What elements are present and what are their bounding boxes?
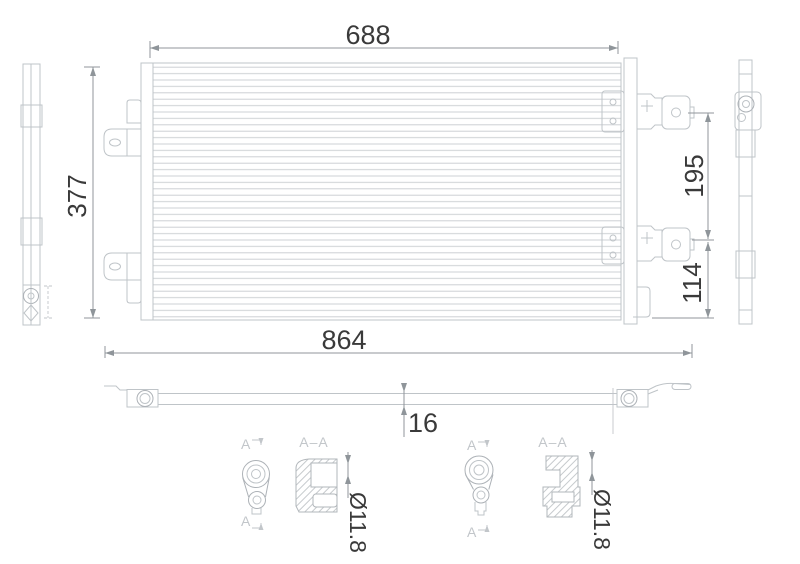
dimension-16: 16 <box>404 384 438 438</box>
bottom-view <box>104 383 691 434</box>
dim-port-left-text: Ø11.8 <box>345 492 371 553</box>
detail-left: A A A–A <box>241 434 337 529</box>
section-title-right: A–A <box>538 434 567 450</box>
dim-864-text: 864 <box>321 325 366 355</box>
right-upper-mount-cross <box>641 100 653 112</box>
section-title-left: A–A <box>299 434 328 450</box>
section-arrow-top-right <box>478 442 487 447</box>
bottom-bracket-arm <box>648 383 690 390</box>
right-lower-clip-hole <box>672 240 681 249</box>
front-view <box>104 58 694 324</box>
dimension-377: 377 <box>62 67 100 318</box>
dimension-688: 688 <box>150 20 618 58</box>
detail-right: A A A–A <box>465 434 580 540</box>
section-arrow-bottom-left-label: A <box>241 513 251 529</box>
dim-port-right-text: Ø11.8 <box>589 489 615 550</box>
dimension-port-left: Ø11.8 <box>345 452 371 553</box>
section-arrow-top-right-label: A <box>467 437 477 453</box>
left-lower-bracket-hole <box>110 263 121 270</box>
bottom-right-port <box>621 391 637 407</box>
receiver-drier-tube <box>624 58 637 324</box>
section-arrow-bottom-left <box>252 523 261 528</box>
strip-lines <box>158 394 617 405</box>
left-upper-bracket-hole <box>110 139 121 146</box>
left-upper-tab <box>127 100 141 123</box>
section-arrow-top-left-label: A <box>241 436 251 452</box>
right-lower-mount-cross <box>641 232 653 244</box>
right-side-view <box>735 60 761 324</box>
bottom-left-port <box>137 391 153 407</box>
section-bore-right <box>552 492 574 502</box>
dim-195-text: 195 <box>679 154 709 197</box>
dim-16-text: 16 <box>408 408 438 438</box>
dim-114-text: 114 <box>677 262 707 303</box>
section-arrow-top-left <box>252 440 261 445</box>
dimension-864: 864 <box>105 325 692 358</box>
section-bore-left <box>313 494 337 507</box>
condenser-technical-drawing: 688 377 864 195 114 16 Ø11.8 Ø11.8 <box>0 0 800 564</box>
right-upper-clip-hole <box>672 108 681 117</box>
right-upper-mount <box>637 94 662 129</box>
dim-688-text: 688 <box>345 20 390 50</box>
left-header-tank <box>141 63 153 320</box>
section-arrow-bottom-right <box>478 525 487 530</box>
right-lower-clip <box>662 228 690 261</box>
section-arrow-bottom-right-label: A <box>467 524 477 540</box>
core-fins <box>153 64 621 320</box>
right-lower-mount <box>637 226 662 261</box>
left-lower-tab <box>127 280 141 303</box>
section-view-right <box>543 456 580 517</box>
dimension-195: 195 <box>679 113 714 240</box>
left-side-view <box>21 64 52 325</box>
dim-377-text: 377 <box>62 174 92 217</box>
right-lower-tab <box>633 287 650 317</box>
right-upper-clip <box>662 96 690 129</box>
technical-drawing-page: 688 377 864 195 114 16 Ø11.8 Ø11.8 <box>0 0 800 564</box>
dimension-114: 114 <box>652 242 714 318</box>
dimension-port-right: Ø11.8 <box>589 450 615 550</box>
